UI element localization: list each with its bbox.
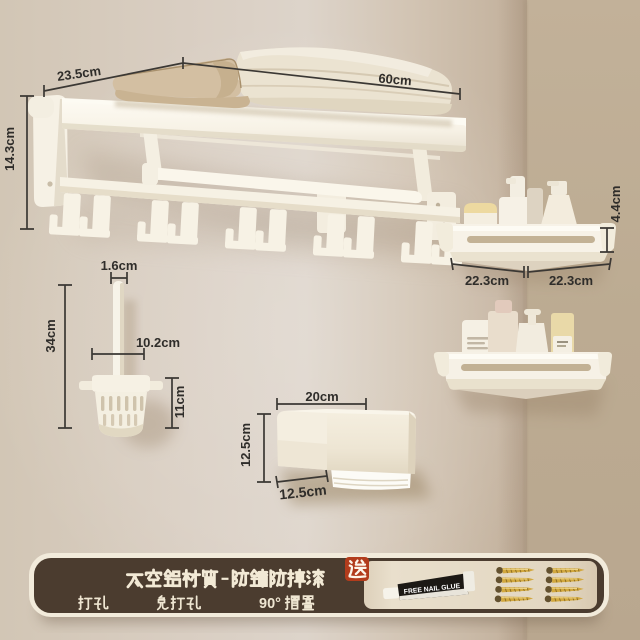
svg-text:10.2cm: 10.2cm bbox=[136, 335, 180, 350]
svg-text:90°: 90° bbox=[259, 596, 281, 612]
svg-text:4.4cm: 4.4cm bbox=[608, 186, 623, 223]
svg-text:34cm: 34cm bbox=[43, 319, 58, 352]
svg-text:20cm: 20cm bbox=[305, 389, 338, 404]
svg-text:11cm: 11cm bbox=[172, 386, 187, 419]
svg-text:12.5cm: 12.5cm bbox=[238, 423, 253, 467]
svg-text:1.6cm: 1.6cm bbox=[101, 258, 138, 273]
svg-text:22.3cm: 22.3cm bbox=[465, 273, 509, 288]
svg-text:60cm: 60cm bbox=[378, 71, 412, 89]
svg-text:14.3cm: 14.3cm bbox=[2, 127, 17, 171]
svg-text:22.3cm: 22.3cm bbox=[549, 273, 593, 288]
